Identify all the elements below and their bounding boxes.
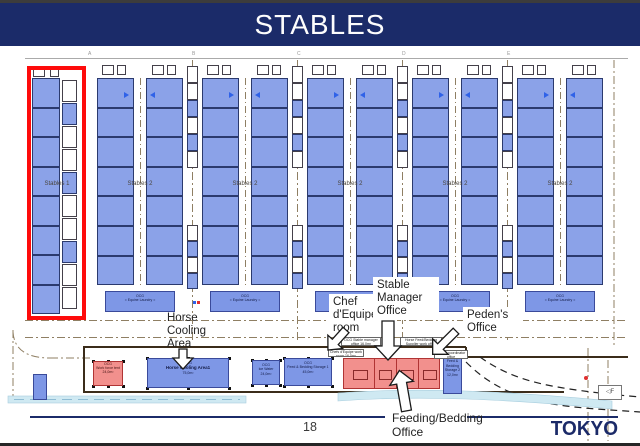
page-title: STABLES — [0, 3, 640, 46]
arrow-down-left-icon — [321, 323, 354, 356]
page-number: 18 — [303, 420, 317, 434]
callout-feeding-bedding-office: Feeding/Bedding Office — [392, 412, 512, 439]
stables1-highlight-box — [27, 66, 86, 320]
arrow-down-icon — [173, 349, 193, 369]
tokyo-2020-logo: TOKYO 2020 — [506, 418, 618, 446]
arrow-down-icon — [375, 321, 401, 360]
callout-line: Office — [392, 426, 512, 440]
arrow-down-left-icon — [425, 323, 464, 362]
callout-line: Feeding/Bedding — [392, 412, 512, 426]
top-border — [0, 0, 640, 3]
title-banner: STABLES — [0, 3, 640, 46]
callout-arrows-layer — [0, 0, 640, 446]
footer-rule-left — [30, 416, 385, 418]
slide: STABLES — [0, 0, 640, 446]
arrow-up-icon — [388, 368, 419, 413]
